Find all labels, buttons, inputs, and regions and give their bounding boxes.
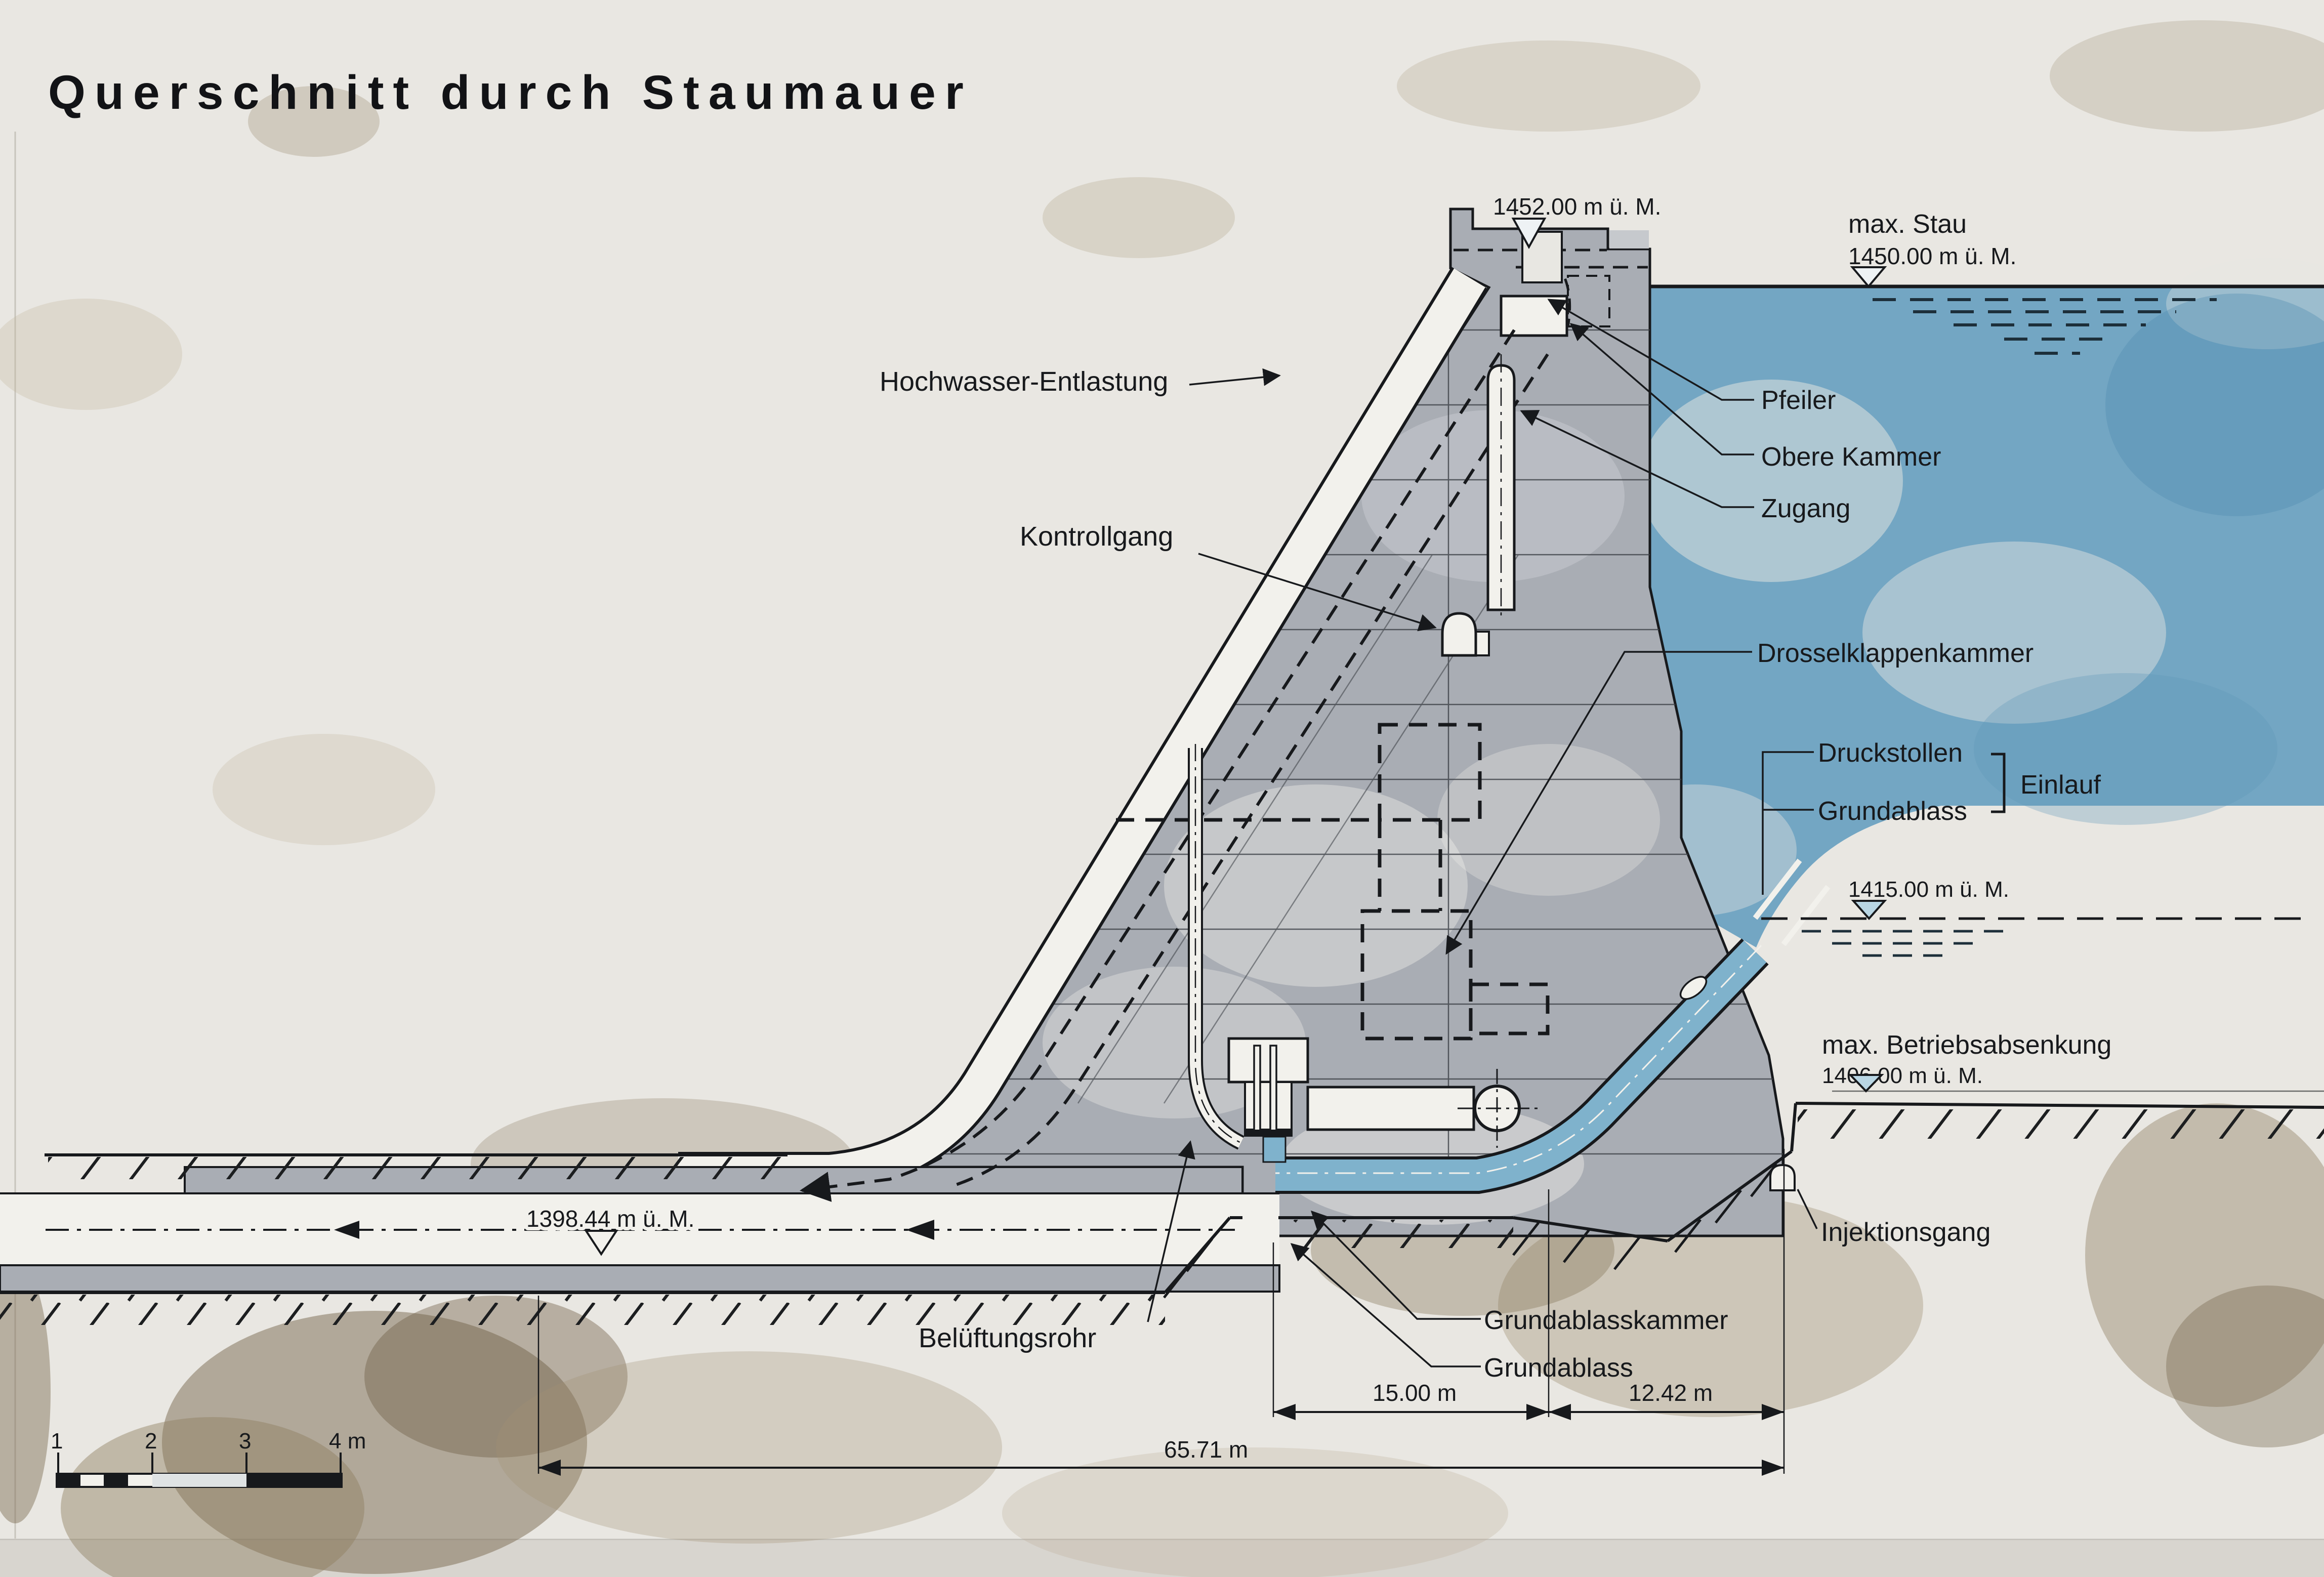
label-drosselklappenkammer: Drosselklappenkammer [1757,639,2033,668]
scale-label-4m: 4 m [329,1429,366,1454]
label-grundablasskammer: Grundablasskammer [1484,1306,1728,1335]
valve-chamber-housing [1229,1039,1308,1082]
tunnel-floor-slab [0,1265,1279,1292]
label-injektionsgang: Injektionsgang [1821,1218,1990,1247]
label-pfeiler: Pfeiler [1761,386,1836,415]
label-grundablass-bottom: Grundablass [1484,1353,1633,1383]
rock-hatching [48,1157,782,1179]
information-board: Querschnitt durch Staumauer [0,0,2324,1577]
gate-housing [1245,1082,1292,1130]
label-obere-kammer: Obere Kammer [1761,442,1941,472]
control-gallery [1442,613,1476,655]
max-betrieb-value: 1406.00 m ü. M. [1822,1063,1983,1088]
level-1415-label: 1415.00 m ü. M. [1848,877,2009,902]
label-hochwasser: Hochwasser-Entlastung [880,366,1168,397]
rock-hatching [1798,1109,2324,1139]
dim-label-15m: 15.00 m [1373,1380,1457,1406]
crest-step-block [1609,230,1649,248]
water-dark-patch [1974,673,2277,825]
gate-seat [1244,1130,1293,1137]
max-stau-value: 1450.00 m ü. M. [1848,243,2016,269]
label-zugang: Zugang [1761,494,1850,523]
max-betrieb-label: max. Betriebsabsenkung [1822,1030,2111,1060]
label-kontrollgang: Kontrollgang [1020,521,1173,552]
label-belueftungsrohr: Belüftungsrohr [919,1323,1096,1353]
crest-elevation-label: 1452.00 m ü. M. [1493,193,1661,220]
dim-label-6571m: 65.71 m [1164,1436,1248,1463]
upper-chamber [1501,296,1567,336]
page-title: Querschnitt durch Staumauer [48,66,973,119]
rock-hatching [0,1295,1165,1325]
dam-cross-section-diagram: Querschnitt durch Staumauer [0,0,2324,1577]
injection-gallery [1770,1165,1795,1190]
scale-label-3: 3 [239,1429,251,1454]
scale-label-1: 1 [51,1429,63,1454]
scale-label-2: 2 [145,1429,157,1454]
dim-label-1242m: 12.42 m [1629,1380,1713,1406]
label-druckstollen: Druckstollen [1818,738,1963,768]
outlet-elevation-label: 1398.44 m ü. M. [526,1206,694,1232]
gate-stem [1270,1046,1276,1134]
gate-stem [1254,1046,1260,1134]
outlet-water-column [1263,1137,1285,1162]
label-einlauf: Einlauf [2020,770,2101,800]
max-stau-label: max. Stau [1848,210,1967,239]
label-grundablass-right: Grundablass [1818,797,1967,826]
outlet-duct [1308,1087,1474,1130]
